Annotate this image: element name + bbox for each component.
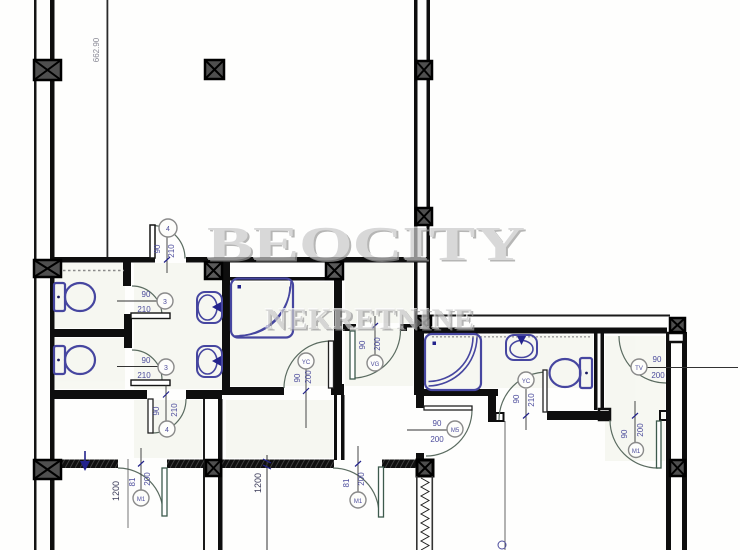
- svg-text:200: 200: [373, 337, 382, 351]
- svg-text:90: 90: [152, 406, 161, 415]
- svg-text:90: 90: [142, 290, 151, 299]
- svg-text:1200: 1200: [111, 481, 121, 501]
- svg-text:YC: YC: [302, 360, 311, 366]
- svg-text:YC: YC: [522, 379, 531, 385]
- svg-text:90: 90: [620, 429, 629, 438]
- svg-text:3: 3: [164, 365, 168, 372]
- svg-text:90: 90: [293, 373, 302, 382]
- svg-text:90: 90: [358, 340, 367, 349]
- svg-text:210: 210: [137, 371, 151, 380]
- svg-text:90: 90: [653, 355, 662, 364]
- svg-text:200: 200: [430, 435, 444, 444]
- svg-text:3: 3: [163, 299, 167, 306]
- svg-text:210: 210: [527, 393, 536, 407]
- svg-text:M1: M1: [354, 499, 363, 505]
- svg-text:M1: M1: [632, 449, 641, 455]
- svg-text:200: 200: [143, 472, 152, 486]
- svg-text:1200: 1200: [253, 473, 263, 493]
- svg-text:200: 200: [651, 371, 665, 380]
- svg-text:NEKRETNINE: NEKRETNINE: [265, 303, 475, 336]
- svg-text:210: 210: [170, 403, 179, 417]
- svg-text:200: 200: [304, 370, 313, 384]
- svg-text:90: 90: [142, 356, 151, 365]
- svg-text:M1: M1: [137, 497, 146, 503]
- svg-text:200: 200: [357, 472, 366, 486]
- svg-text:210: 210: [137, 305, 151, 314]
- svg-text:210: 210: [167, 244, 176, 258]
- svg-text:4: 4: [165, 427, 169, 434]
- svg-text:4: 4: [166, 226, 170, 233]
- svg-text:90: 90: [512, 394, 521, 403]
- svg-text:TV: TV: [635, 366, 643, 372]
- svg-text:VG: VG: [371, 362, 380, 368]
- svg-text:81: 81: [342, 478, 351, 487]
- svg-text:90: 90: [153, 244, 162, 253]
- svg-text:81: 81: [128, 477, 137, 486]
- svg-text:90: 90: [433, 419, 442, 428]
- svg-text:662.90: 662.90: [92, 37, 101, 62]
- svg-text:200: 200: [636, 423, 645, 437]
- svg-text:M5: M5: [451, 428, 460, 434]
- svg-text:BEOCITY: BEOCITY: [207, 216, 525, 271]
